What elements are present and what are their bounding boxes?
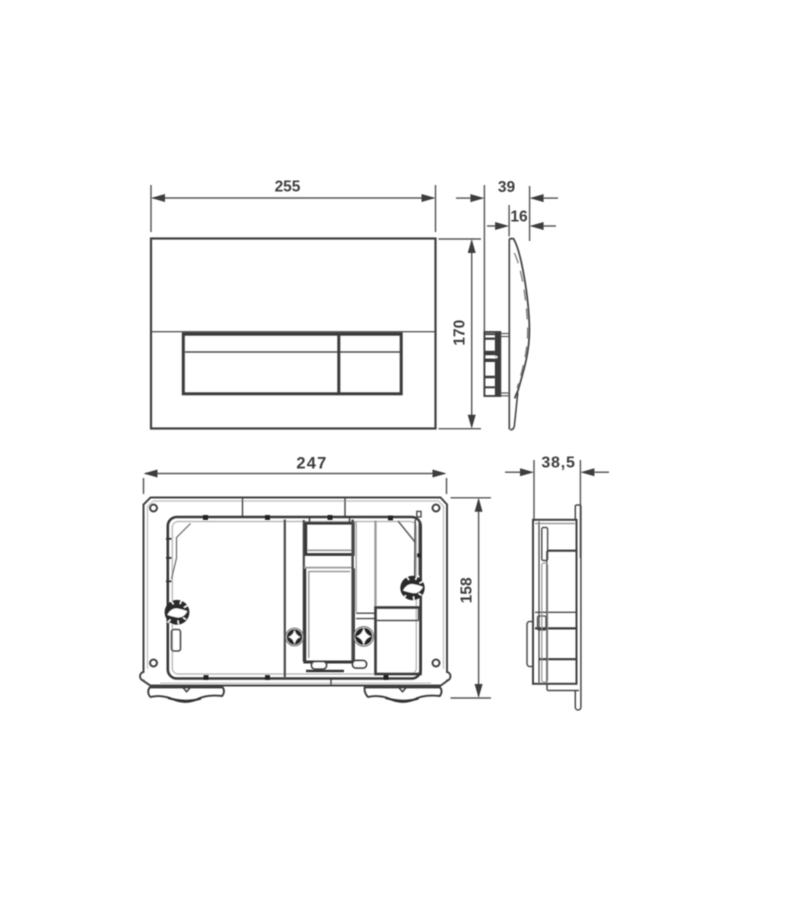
- svg-text:16: 16: [510, 209, 528, 226]
- svg-text:38,5: 38,5: [541, 454, 575, 471]
- svg-text:170: 170: [451, 320, 468, 346]
- svg-text:255: 255: [275, 179, 301, 196]
- svg-text:247: 247: [296, 455, 327, 473]
- svg-text:158: 158: [459, 577, 476, 603]
- svg-text:39: 39: [498, 179, 516, 196]
